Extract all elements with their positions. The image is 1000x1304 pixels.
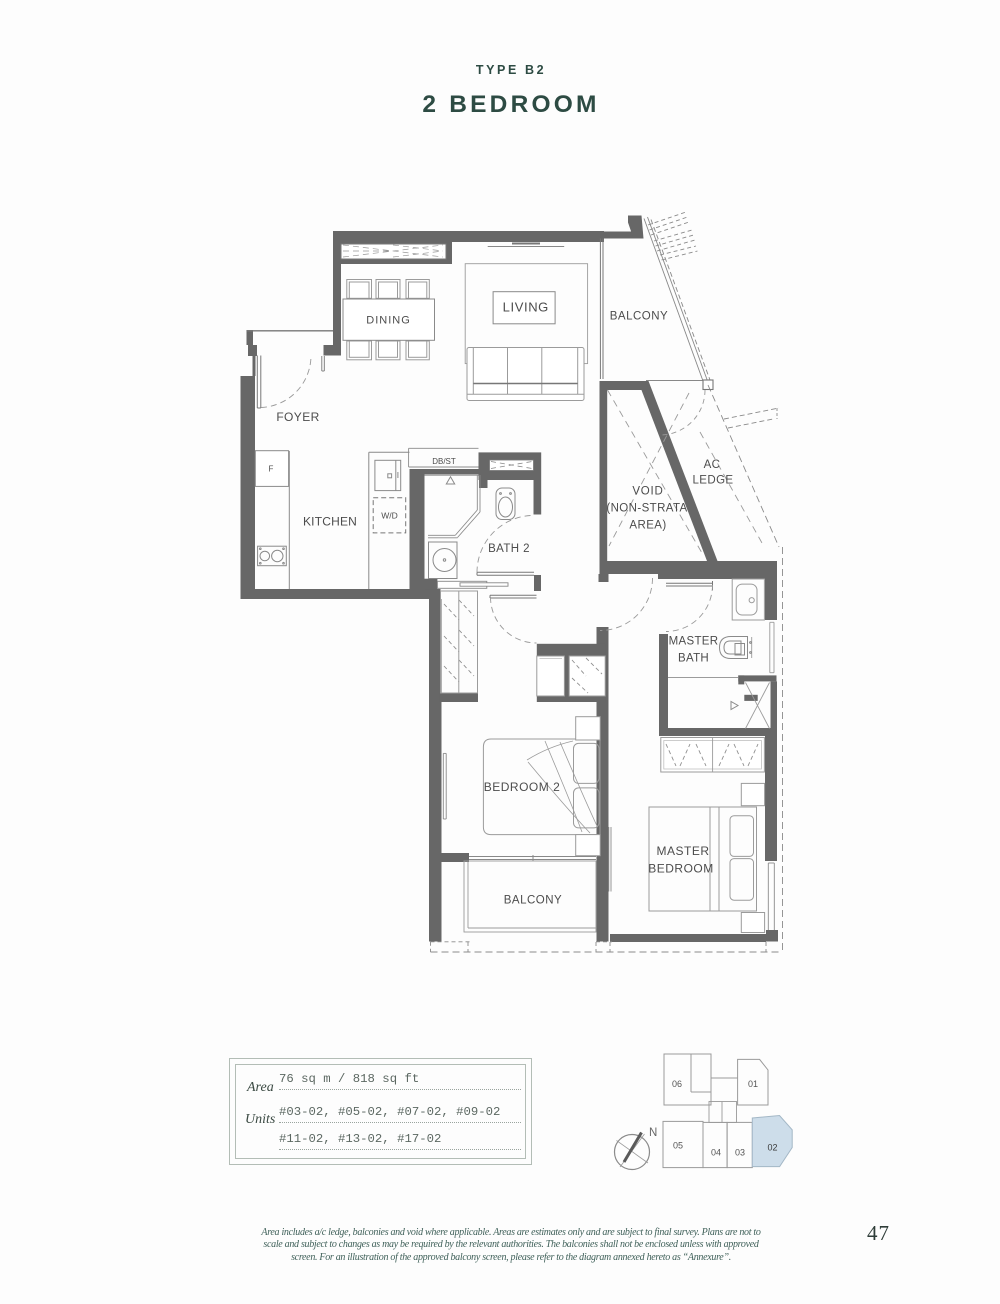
svg-text:BATH: BATH [678,653,709,665]
svg-text:BEDROOM 2: BEDROOM 2 [484,780,561,794]
svg-text:06: 06 [672,1079,682,1089]
svg-text:KITCHEN: KITCHEN [303,515,357,529]
svg-text:W/D: W/D [381,511,398,521]
svg-text:BALCONY: BALCONY [504,895,562,907]
svg-text:BATH 2: BATH 2 [488,543,530,555]
svg-text:03: 03 [735,1148,745,1158]
svg-text:DB/ST: DB/ST [432,457,456,466]
svg-text:BEDROOM: BEDROOM [648,862,714,876]
svg-text:AREA): AREA) [629,520,666,532]
svg-text:BALCONY: BALCONY [610,311,668,323]
svg-text:F: F [269,465,274,474]
svg-text:04: 04 [711,1148,721,1158]
svg-text:N: N [649,1127,657,1139]
svg-text:VOID: VOID [632,486,663,498]
svg-text:FOYER: FOYER [276,410,319,424]
svg-text:DINING: DINING [366,315,411,327]
svg-text:02: 02 [767,1143,777,1153]
svg-text:LEDGE: LEDGE [693,475,734,487]
svg-text:MASTER: MASTER [669,636,719,648]
svg-text:05: 05 [673,1141,683,1151]
svg-text:(NON-STRATA: (NON-STRATA [606,503,687,515]
svg-text:MASTER: MASTER [656,844,709,858]
svg-text:01: 01 [748,1079,758,1089]
svg-text:AC: AC [704,459,721,471]
svg-text:LIVING: LIVING [503,300,549,315]
